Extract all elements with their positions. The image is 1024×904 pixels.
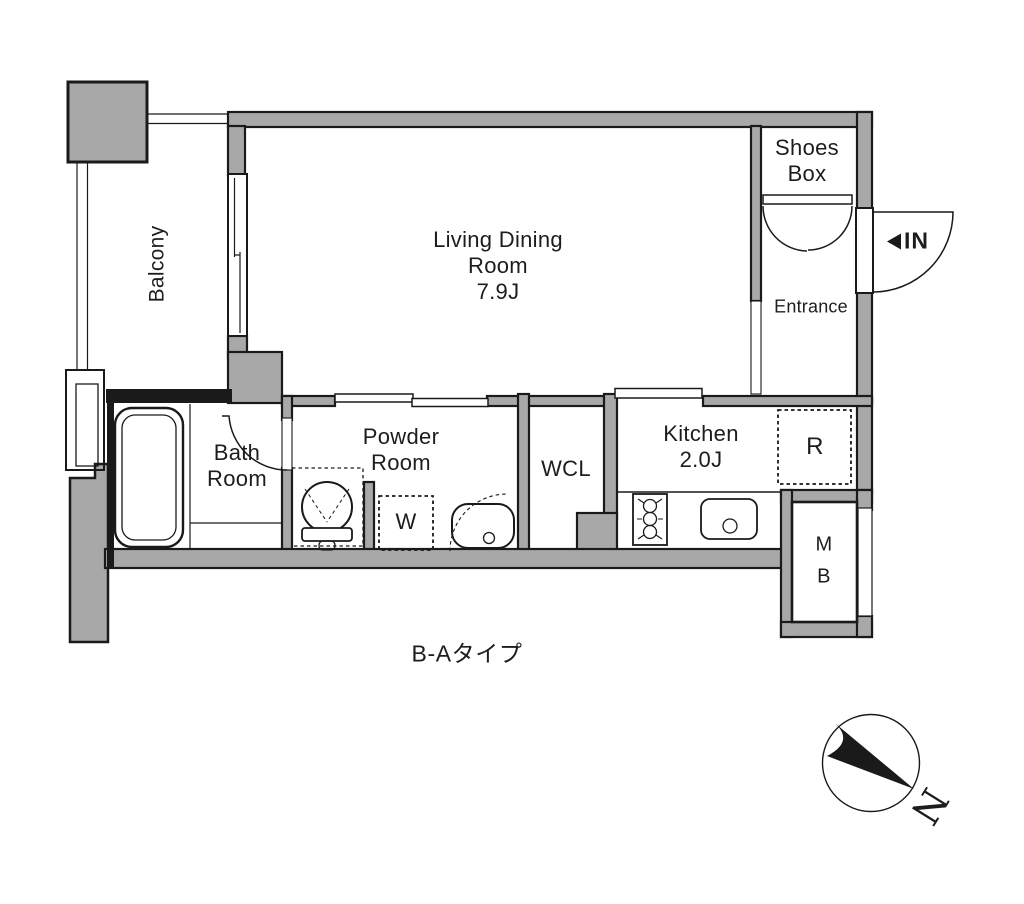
bath-door-opening — [282, 418, 292, 470]
entrance-corridor-wall — [751, 126, 761, 301]
floor-plan-drawing — [0, 0, 1024, 904]
kitchen-label: Kitchen 2.0J — [663, 421, 738, 473]
wcl-label: WCL — [541, 456, 591, 482]
balcony-label: Balcony — [146, 226, 171, 303]
wall-bottom — [105, 549, 782, 568]
door-swings — [222, 206, 953, 470]
refrigerator-label: R — [806, 433, 824, 461]
bottom-left-wall-block — [70, 464, 108, 642]
wcl-step-block — [577, 513, 617, 553]
wall-top — [228, 112, 872, 127]
wall-right-mid — [857, 291, 872, 403]
stove-icon — [633, 494, 667, 545]
living-dining-room-label: Living Dining Room 7.9J — [433, 227, 563, 305]
bath-room-label: Bath Room — [207, 440, 267, 492]
floor-plan-page: Balcony Living Dining Room 7.9J Shoes Bo… — [0, 0, 1024, 904]
in-arrow-icon — [887, 233, 901, 249]
toilet-icon — [292, 468, 363, 550]
shoes-box-door-left — [763, 206, 807, 251]
washbasin-icon — [450, 494, 514, 551]
toilet-partition-stub — [364, 482, 374, 553]
shoes-box-door-right — [808, 206, 852, 250]
bathtub-icon — [115, 408, 183, 547]
in-label: IN — [904, 228, 929, 255]
washer-label: W — [395, 509, 416, 535]
wall-right-upper — [857, 112, 872, 213]
balcony-window — [228, 174, 247, 336]
shoes-box-label: Shoes Box — [775, 135, 839, 187]
kitchen-sliding-door-panel — [615, 389, 702, 399]
powder-sliding-door-panel-1 — [335, 394, 413, 402]
pillar — [68, 82, 147, 162]
powder-sliding-door-panel-2 — [412, 399, 488, 407]
entrance-in-marker: IN — [887, 228, 929, 255]
wall-right-lower — [857, 398, 872, 492]
corridor-opening — [751, 301, 761, 394]
entrance-label: Entrance — [774, 296, 848, 317]
shoes-box-shelf — [763, 195, 852, 204]
entrance-door-leaf — [856, 208, 873, 293]
compass-icon — [823, 715, 920, 812]
meter-box-door — [858, 508, 872, 616]
powder-room-label: Powder Room — [363, 424, 439, 476]
meter-box-label: M B — [816, 529, 833, 594]
plan-type-title: B-Aタイプ — [412, 640, 523, 667]
